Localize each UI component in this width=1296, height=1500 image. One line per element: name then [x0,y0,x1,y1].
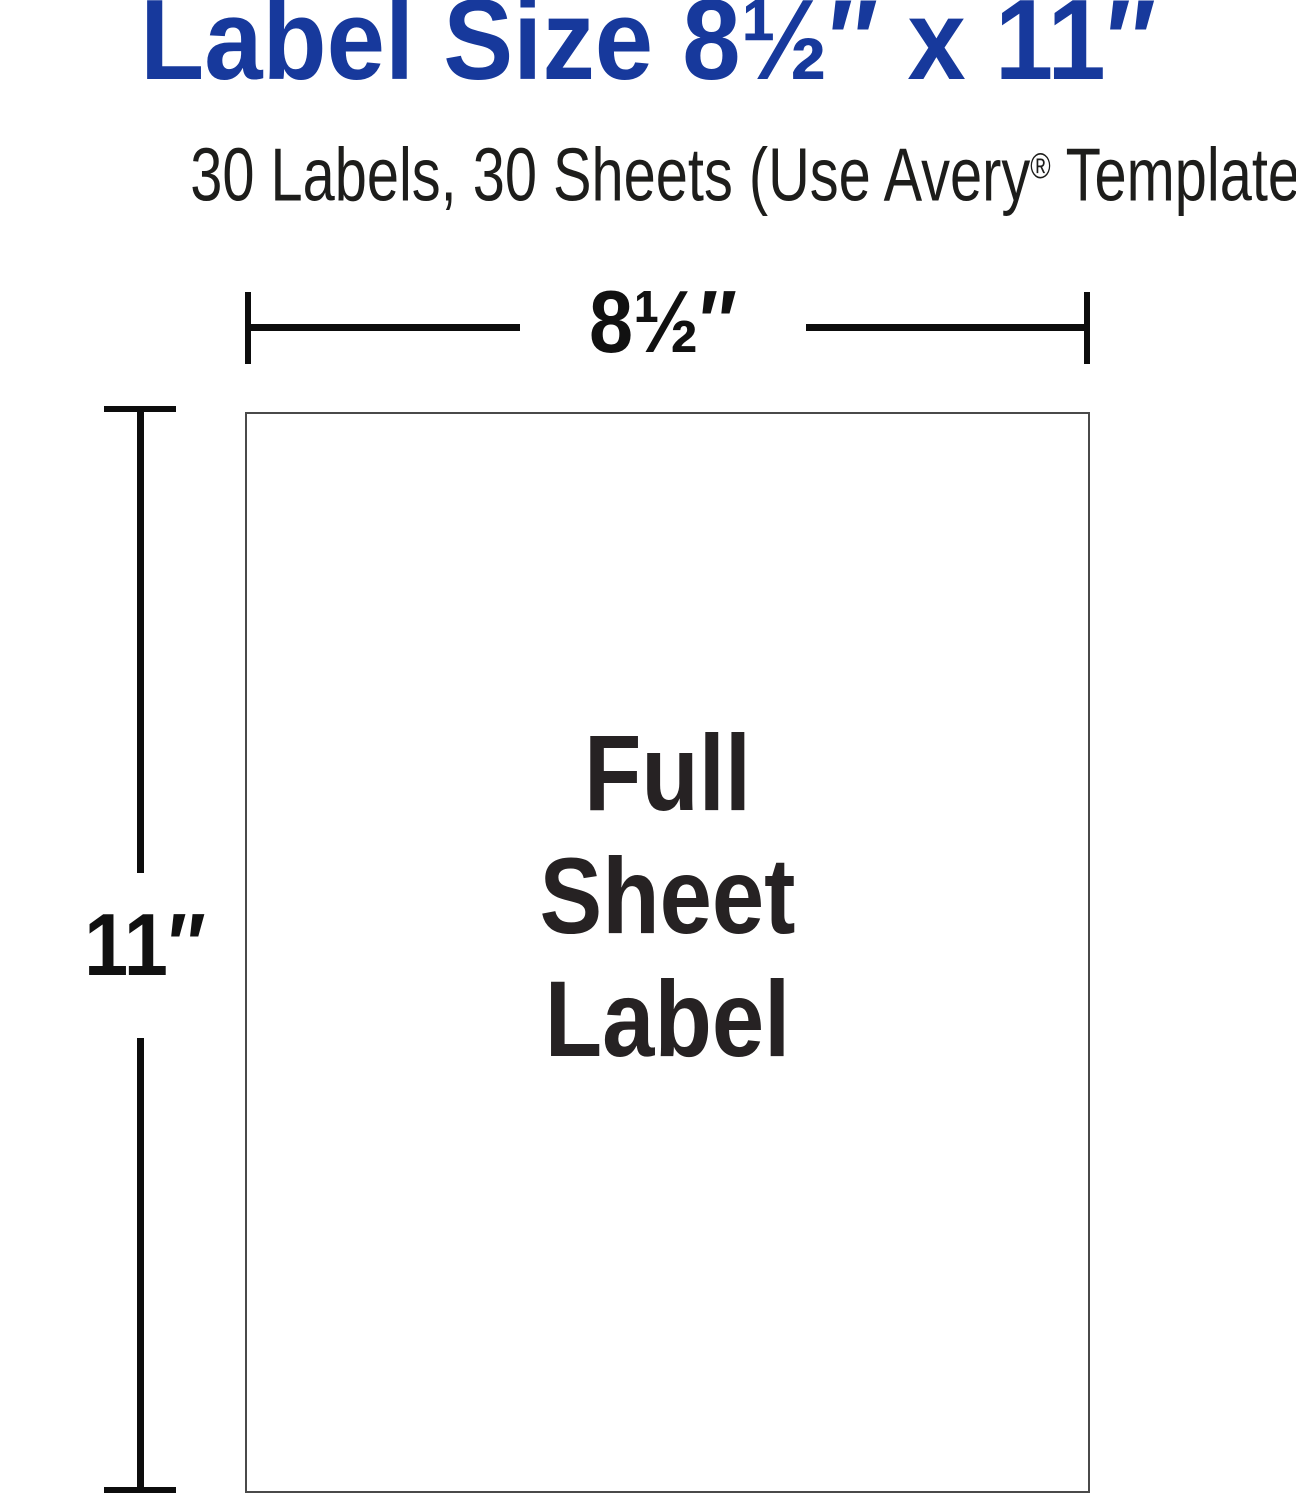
subtitle: 30 Labels, 30 Sheets (Use Avery® Templat… [0,126,1296,214]
page-title: Label Size 8½″ x 11″ [0,0,1296,98]
height-dimension-label: 11″ [82,901,208,989]
subtitle-text: 30 Labels, 30 Sheets (Use Avery® Templat… [190,126,1296,214]
height-dimension-top-segment [137,412,144,873]
sheet-label-text: Full Sheet Label [300,711,1035,1080]
sheet-label-line-3: Label [300,957,1035,1080]
subtitle-suffix: Template 3383) [1051,132,1296,216]
width-dimension-label: 8½″ [534,278,791,366]
product-diagram-page: Label Size 8½″ x 11″ 30 Labels, 30 Sheet… [0,0,1296,1500]
width-dimension-right-tick [1084,292,1090,364]
registered-trademark-symbol: ® [1030,145,1050,186]
width-dimension-right-segment [806,324,1084,331]
sheet-label-line-1: Full [300,711,1035,834]
height-dimension-bottom-segment [137,1038,144,1487]
width-dimension-left-segment [251,324,520,331]
subtitle-prefix: 30 Labels, 30 Sheets (Use Avery [190,132,1030,216]
height-dimension-bottom-tick [104,1487,176,1493]
sheet-label-line-2: Sheet [300,834,1035,957]
page-title-text: Label Size 8½″ x 11″ [140,0,1156,98]
